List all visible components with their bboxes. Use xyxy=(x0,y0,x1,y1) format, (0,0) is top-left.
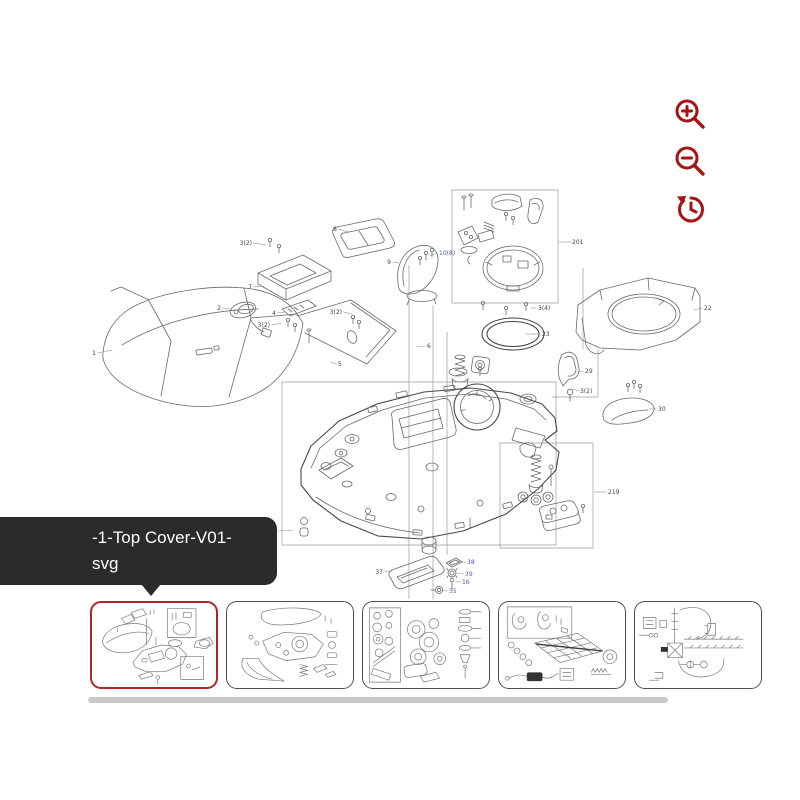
connector-lines xyxy=(409,265,583,599)
assembly-219-parts xyxy=(518,443,585,531)
parts-diagram-viewer: 123(2)743(2)8910(8)3(2)562013(4)2322293(… xyxy=(0,0,800,800)
thumbnail-art-2 xyxy=(227,602,353,688)
svg-text:10(8): 10(8) xyxy=(439,250,455,257)
svg-text:7: 7 xyxy=(248,284,252,291)
part-stop-button xyxy=(229,300,272,338)
detail-box-chassis xyxy=(282,382,556,545)
thumbnail-3-drive-gears[interactable] xyxy=(362,601,490,689)
svg-text:2: 2 xyxy=(217,305,221,312)
part-rear-frame xyxy=(576,278,700,354)
svg-text:8: 8 xyxy=(333,226,337,233)
svg-text:3(2): 3(2) xyxy=(258,322,270,329)
part-bracket-29 xyxy=(558,352,579,401)
svg-text:6: 6 xyxy=(427,343,431,350)
svg-text:201: 201 xyxy=(572,239,584,246)
assembly-201-parts xyxy=(458,194,543,291)
zoom-out-button[interactable] xyxy=(672,143,708,179)
svg-text:9: 9 xyxy=(387,259,391,266)
thumbnail-5-wiring-harness[interactable] xyxy=(634,601,762,689)
svg-text:3(2): 3(2) xyxy=(580,388,592,395)
part-top-cover xyxy=(103,287,396,407)
svg-text:39: 39 xyxy=(465,571,473,578)
svg-text:16: 16 xyxy=(462,579,470,586)
zoom-toolbar xyxy=(672,96,708,226)
tooltip-caret xyxy=(141,584,161,596)
svg-text:219: 219 xyxy=(608,489,620,496)
filename-tooltip: -1-Top Cover-V01- svg xyxy=(0,517,277,585)
part-panel xyxy=(333,219,395,258)
part-chassis xyxy=(301,384,559,554)
brand-logo xyxy=(196,346,219,355)
svg-text:38: 38 xyxy=(467,559,475,566)
svg-text:4: 4 xyxy=(272,310,276,317)
thumbnail-1-top-cover[interactable] xyxy=(90,601,218,689)
thumbnail-art-5 xyxy=(635,602,761,688)
thumbnail-art-3 xyxy=(363,602,489,688)
zoom-in-icon xyxy=(672,96,708,132)
thumbnail-4-blade-mesh[interactable] xyxy=(498,601,626,689)
thumbnail-art-1 xyxy=(92,603,216,687)
svg-text:23: 23 xyxy=(542,331,550,338)
svg-text:3(4): 3(4) xyxy=(538,305,550,312)
history-restore-button[interactable] xyxy=(672,190,708,226)
zoom-in-button[interactable] xyxy=(672,96,708,132)
svg-text:37: 37 xyxy=(375,569,383,576)
part-229-bumpers xyxy=(300,518,308,537)
spring-knob-cluster xyxy=(449,355,490,390)
thumbnail-art-4 xyxy=(499,602,625,688)
history-restore-icon xyxy=(672,190,708,226)
part-latch-bar xyxy=(282,300,316,316)
zoom-out-icon xyxy=(672,143,708,179)
svg-text:29: 29 xyxy=(585,368,593,375)
svg-text:30: 30 xyxy=(658,406,666,413)
part-side-panel xyxy=(603,398,654,424)
svg-text:22: 22 xyxy=(704,305,712,312)
svg-text:1: 1 xyxy=(92,350,96,357)
thumbnail-strip xyxy=(90,601,800,693)
svg-text:5: 5 xyxy=(338,361,342,368)
tooltip-line2: svg xyxy=(92,551,277,577)
thumbnail-scrollbar[interactable] xyxy=(88,697,668,703)
thumbnail-2-chassis[interactable] xyxy=(226,601,354,689)
svg-text:3(2): 3(2) xyxy=(330,309,342,316)
svg-text:35: 35 xyxy=(449,588,457,595)
tooltip-line1: -1-Top Cover-V01- xyxy=(92,525,277,551)
svg-text:3(2): 3(2) xyxy=(240,240,252,247)
